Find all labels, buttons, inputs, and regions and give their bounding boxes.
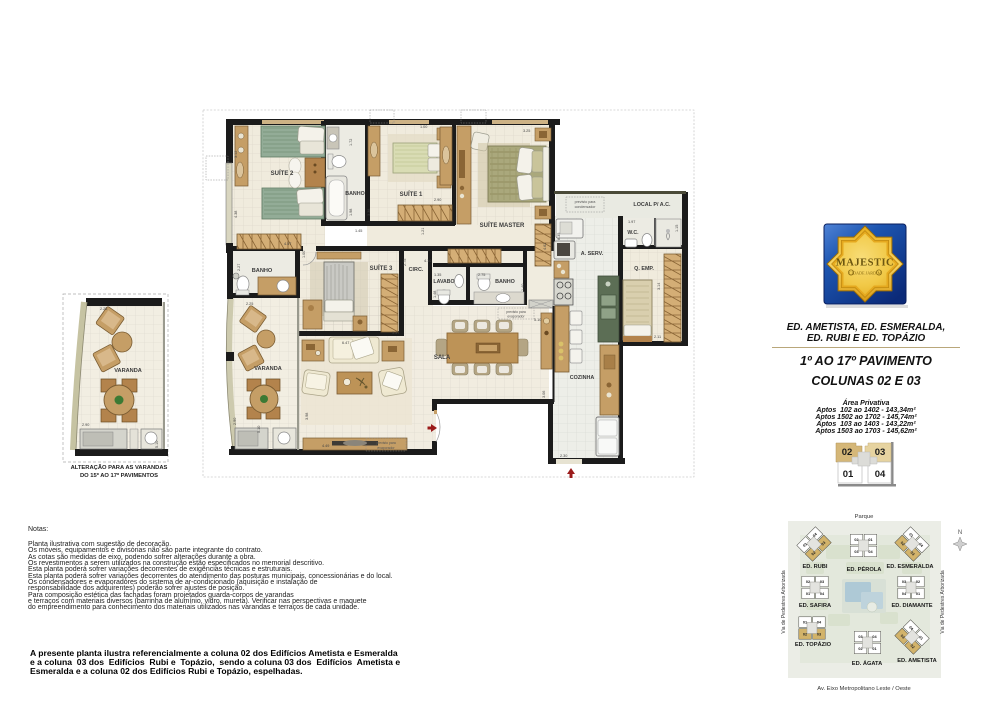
svg-text:1.40: 1.40 bbox=[521, 284, 525, 291]
svg-text:03: 03 bbox=[902, 580, 906, 584]
svg-text:03: 03 bbox=[875, 447, 886, 458]
svg-text:ED. PÉROLA: ED. PÉROLA bbox=[847, 565, 882, 573]
svg-text:01: 01 bbox=[843, 469, 854, 480]
svg-text:Via de Pedestres Arborizada: Via de Pedestres Arborizada bbox=[940, 570, 946, 634]
svg-text:VARANDA: VARANDA bbox=[114, 368, 142, 374]
svg-text:03: 03 bbox=[817, 633, 821, 637]
svg-text:SUÍTE MASTER: SUÍTE MASTER bbox=[480, 221, 525, 229]
svg-text:03: 03 bbox=[820, 580, 824, 584]
svg-text:02: 02 bbox=[916, 580, 920, 584]
svg-text:ALTERAÇÃO PARA AS VARANDAS: ALTERAÇÃO PARA AS VARANDAS bbox=[71, 464, 168, 471]
svg-text:3.25: 3.25 bbox=[523, 129, 530, 133]
svg-text:4.57: 4.57 bbox=[284, 242, 291, 246]
svg-text:2.90: 2.90 bbox=[233, 418, 237, 425]
svg-text:3.98: 3.98 bbox=[305, 413, 309, 420]
svg-text:SUÍTE 2: SUÍTE 2 bbox=[271, 169, 294, 177]
svg-text:1.97: 1.97 bbox=[628, 220, 635, 224]
svg-text:Parque: Parque bbox=[855, 514, 874, 520]
svg-text:ED. DIAMANTE: ED. DIAMANTE bbox=[891, 603, 932, 609]
svg-text:DO 15º AO 17º PAVIMENTOS: DO 15º AO 17º PAVIMENTOS bbox=[80, 473, 158, 479]
svg-text:BANHO: BANHO bbox=[345, 191, 364, 197]
svg-text:2.11: 2.11 bbox=[654, 335, 661, 339]
svg-text:3.37: 3.37 bbox=[392, 331, 399, 335]
svg-text:4.38: 4.38 bbox=[234, 211, 238, 218]
svg-text:5.10: 5.10 bbox=[534, 318, 541, 322]
svg-text:ED. AMETISTA: ED. AMETISTA bbox=[897, 658, 937, 664]
svg-text:SUÍTE 3: SUÍTE 3 bbox=[370, 264, 393, 272]
svg-text:Av. Eixo Metropolitano Leste /: Av. Eixo Metropolitano Leste / Oeste bbox=[817, 686, 911, 692]
svg-text:SALA: SALA bbox=[434, 355, 451, 361]
svg-text:ED. TOPÁZIO: ED. TOPÁZIO bbox=[795, 641, 832, 648]
svg-text:previsto para: previsto para bbox=[376, 441, 396, 445]
svg-text:8.35: 8.35 bbox=[557, 233, 561, 240]
svg-text:3.12: 3.12 bbox=[234, 151, 238, 158]
svg-text:Via de Pedestres Arborizada: Via de Pedestres Arborizada bbox=[781, 570, 787, 634]
svg-text:2.90: 2.90 bbox=[82, 423, 89, 427]
svg-text:02: 02 bbox=[803, 633, 807, 637]
svg-text:Q. EMP.: Q. EMP. bbox=[634, 266, 654, 272]
svg-text:3.14: 3.14 bbox=[657, 283, 661, 290]
svg-text:ED. ESMERALDA: ED. ESMERALDA bbox=[886, 564, 933, 570]
svg-text:condensador: condensador bbox=[575, 205, 597, 209]
svg-text:1.48: 1.48 bbox=[433, 291, 437, 298]
svg-text:1.00: 1.00 bbox=[302, 251, 306, 258]
svg-text:1.00: 1.00 bbox=[420, 125, 427, 129]
svg-text:02: 02 bbox=[806, 580, 810, 584]
svg-text:01: 01 bbox=[803, 621, 807, 625]
svg-text:2.25: 2.25 bbox=[246, 302, 253, 306]
svg-text:BANHO: BANHO bbox=[252, 268, 273, 274]
svg-text:1.21: 1.21 bbox=[421, 228, 425, 235]
svg-text:3.38: 3.38 bbox=[367, 209, 371, 216]
svg-text:01: 01 bbox=[916, 592, 920, 596]
svg-text:03: 03 bbox=[854, 550, 858, 554]
svg-text:01: 01 bbox=[872, 647, 876, 651]
svg-text:3.06: 3.06 bbox=[542, 391, 546, 398]
svg-text:VARANDA: VARANDA bbox=[254, 366, 282, 372]
svg-text:1.72: 1.72 bbox=[349, 139, 353, 146]
svg-text:ED. RUBI: ED. RUBI bbox=[803, 564, 828, 570]
svg-text:1.15: 1.15 bbox=[675, 225, 679, 232]
svg-text:2.30: 2.30 bbox=[560, 454, 567, 458]
svg-text:01: 01 bbox=[806, 592, 810, 596]
svg-text:2.75: 2.75 bbox=[478, 273, 485, 277]
svg-text:evaporador: evaporador bbox=[507, 315, 525, 319]
svg-text:4.49: 4.49 bbox=[322, 444, 329, 448]
svg-text:04: 04 bbox=[875, 469, 886, 480]
svg-text:COZINHA: COZINHA bbox=[570, 375, 595, 381]
svg-text:evaporador: evaporador bbox=[377, 446, 395, 450]
svg-text:02: 02 bbox=[854, 538, 858, 542]
svg-text:6.47: 6.47 bbox=[342, 341, 349, 345]
svg-text:02: 02 bbox=[858, 647, 862, 651]
svg-text:W.C.: W.C. bbox=[627, 230, 639, 236]
svg-text:02: 02 bbox=[842, 447, 853, 458]
svg-text:LAVABO: LAVABO bbox=[433, 279, 454, 285]
svg-text:MAJESTIC: MAJESTIC bbox=[836, 258, 894, 269]
svg-text:03: 03 bbox=[858, 635, 862, 639]
svg-text:previsto para: previsto para bbox=[506, 310, 526, 314]
svg-text:2.90: 2.90 bbox=[434, 198, 441, 202]
svg-text:1.98: 1.98 bbox=[349, 209, 353, 216]
svg-text:1.35: 1.35 bbox=[434, 273, 441, 277]
svg-text:BANHO: BANHO bbox=[495, 279, 515, 285]
svg-text:2.75: 2.75 bbox=[403, 259, 407, 266]
svg-text:CIDADE JARDIM: CIDADE JARDIM bbox=[849, 271, 882, 276]
svg-text:4.10: 4.10 bbox=[424, 259, 431, 263]
svg-text:5.10: 5.10 bbox=[155, 441, 159, 448]
svg-text:5.10: 5.10 bbox=[257, 426, 261, 433]
svg-text:previsto para: previsto para bbox=[575, 200, 596, 204]
svg-text:A. SERV.: A. SERV. bbox=[581, 251, 604, 257]
svg-text:2.25: 2.25 bbox=[100, 307, 107, 311]
svg-text:1.45: 1.45 bbox=[355, 229, 362, 233]
svg-text:2.27: 2.27 bbox=[237, 264, 241, 271]
svg-text:ED. ÁGATA: ED. ÁGATA bbox=[852, 660, 882, 667]
svg-text:01: 01 bbox=[868, 538, 872, 542]
svg-text:N: N bbox=[958, 530, 962, 536]
svg-text:ED. SAFIRA: ED. SAFIRA bbox=[799, 603, 831, 609]
svg-text:4.62: 4.62 bbox=[543, 243, 547, 250]
svg-text:LOCAL P/ A.C.: LOCAL P/ A.C. bbox=[633, 202, 671, 208]
svg-text:CIRC.: CIRC. bbox=[409, 267, 424, 273]
svg-text:SUÍTE 1: SUÍTE 1 bbox=[400, 190, 423, 198]
